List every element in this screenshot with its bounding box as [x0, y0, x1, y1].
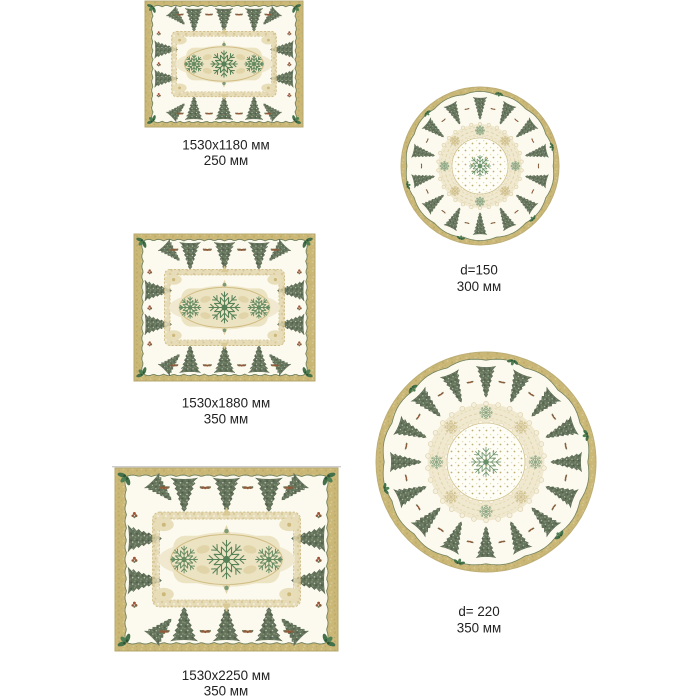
svg-text:350 мм: 350 мм [204, 684, 248, 699]
svg-text:1530x2250 мм: 1530x2250 мм [182, 668, 270, 683]
svg-text:d=150: d=150 [460, 263, 498, 278]
svg-text:350 мм: 350 мм [204, 412, 248, 427]
svg-text:d= 220: d= 220 [458, 604, 499, 619]
svg-text:1530x1180 мм: 1530x1180 мм [182, 138, 269, 153]
svg-text:350 мм: 350 мм [457, 621, 501, 636]
svg-text:1530x1880 мм: 1530x1880 мм [182, 396, 270, 411]
svg-text:250 мм: 250 мм [204, 153, 248, 168]
svg-text:300 мм: 300 мм [457, 279, 501, 294]
